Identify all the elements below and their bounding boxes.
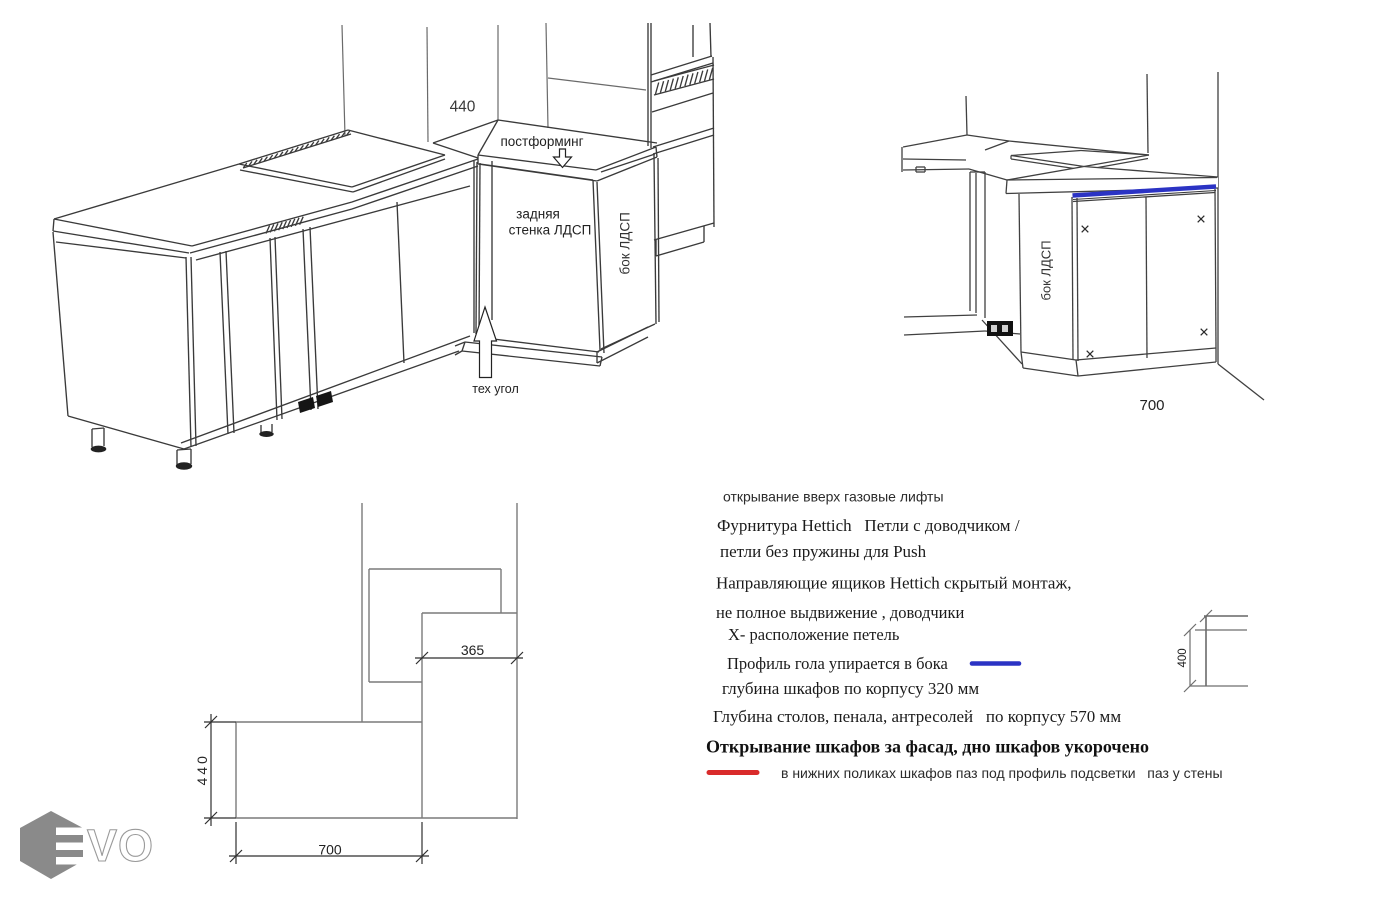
svg-text:петли без пружины для Push: петли без пружины для Push xyxy=(720,542,927,561)
svg-text:Открывание шкафов за фасад, дн: Открывание шкафов за фасад, дно шкафов у… xyxy=(706,737,1149,757)
svg-text:440: 440 xyxy=(450,99,476,116)
svg-text:440: 440 xyxy=(194,753,210,785)
svg-text:бок ЛДСП: бок ЛДСП xyxy=(618,212,633,274)
svg-text:Фурнитура Hettich Петли с до: Фурнитура Hettich Петли с доводчиком / xyxy=(717,516,1020,535)
svg-text:Профиль гола упирается в бока: Профиль гола упирается в бока xyxy=(727,654,948,673)
svg-text:в нижних поликах шкафов паз по: в нижних поликах шкафов паз под профиль … xyxy=(781,765,1223,781)
svg-text:700: 700 xyxy=(318,842,342,858)
svg-text:400: 400 xyxy=(1177,648,1189,667)
svg-text:открывание вверх газовые лифты: открывание вверх газовые лифты xyxy=(723,489,944,505)
svg-text:стенка ЛДСП: стенка ЛДСП xyxy=(509,223,592,238)
svg-text:не полное выдвижение , доводчи: не полное выдвижение , доводчики xyxy=(716,603,964,622)
svg-text:глубина шкафов по корпусу 320: глубина шкафов по корпусу 320 мм xyxy=(722,679,979,698)
svg-text:тех угол: тех угол xyxy=(472,382,519,396)
svg-text:бок ЛДСП: бок ЛДСП xyxy=(1039,240,1054,300)
svg-text:Глубина столов, пенала, антрес: Глубина столов, пенала, антресолей по ко… xyxy=(713,707,1121,726)
svg-text:постформинг: постформинг xyxy=(500,134,583,149)
svg-text:700: 700 xyxy=(1139,397,1164,414)
svg-text:VO: VO xyxy=(87,820,154,871)
svg-text:Направляющие ящиков Hettich ск: Направляющие ящиков Hettich скрытый монт… xyxy=(716,574,1071,593)
svg-text:365: 365 xyxy=(461,642,485,658)
svg-text:задняя: задняя xyxy=(516,207,560,222)
svg-text:Х- расположение петель: Х- расположение петель xyxy=(728,625,900,644)
